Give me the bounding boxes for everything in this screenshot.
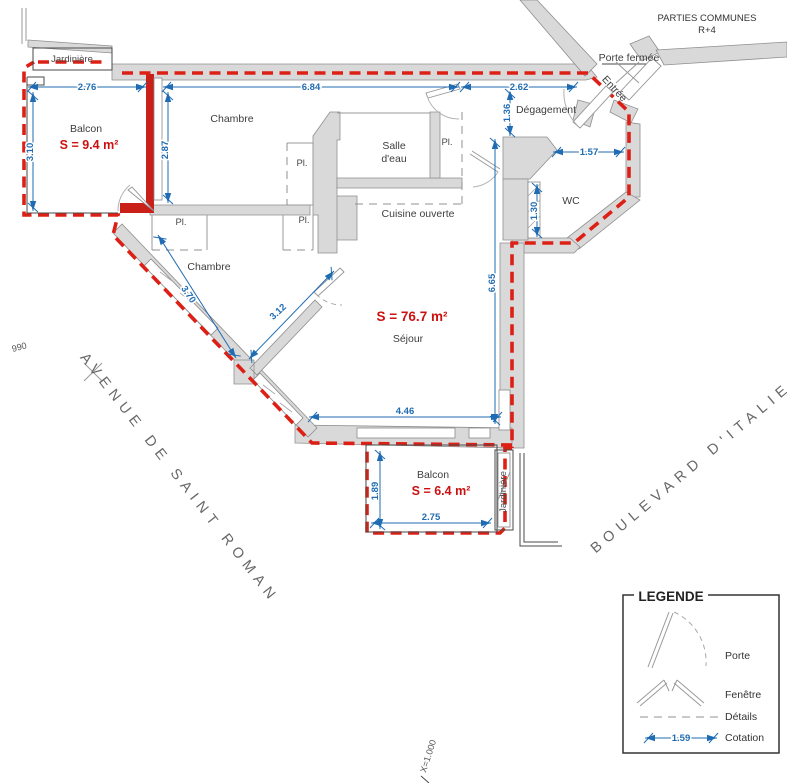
chambre-top-label: Chambre (210, 113, 253, 125)
door-arc-chambre-mid (316, 294, 342, 305)
dim-label-1-57: 1.57 (580, 147, 599, 158)
floor-plan-svg: 2.76 6.84 2.62 3.10 2.87 1.36 1.57 1.30 … (0, 0, 787, 783)
coord-x1000: X=1.000 (418, 738, 438, 773)
floor-plan: 2.76 6.84 2.62 3.10 2.87 1.36 1.57 1.30 … (0, 0, 787, 783)
placard-label-3: Pl. (175, 217, 186, 228)
dim-label-1-36: 1.36 (502, 104, 513, 123)
wall-wc-pillar (503, 137, 557, 179)
salle-eau-line2: d'eau (381, 153, 407, 165)
door-leaf-chambre-mid (314, 268, 344, 296)
sejour-area: S = 76.7 m² (377, 309, 448, 324)
topleft-lines (22, 8, 26, 44)
legend-label-porte: Porte (725, 650, 750, 662)
street-boulevard: BOULEVARD D'ITALIE (588, 379, 787, 556)
window-east-wall (499, 390, 510, 430)
wall-topleft-band (28, 40, 112, 53)
placard-chambre1-box (287, 143, 313, 205)
dim-label-3-12: 3.12 (268, 302, 289, 323)
red-wall-corner (120, 203, 154, 213)
placard-label-1: Pl. (296, 158, 307, 169)
dim-label-4-46: 4.46 (396, 406, 415, 417)
legend-box (623, 595, 779, 753)
legend-label-fenetre: Fenêtre (725, 689, 761, 701)
wc-label: WC (562, 195, 580, 207)
dim-label-2-75: 2.75 (422, 512, 441, 523)
window-sejour-south-1 (357, 428, 455, 438)
legend-sample-dimension: 1.59 (672, 733, 691, 744)
door-arc-wc (473, 172, 498, 187)
placard-label-4: Pl. (298, 215, 309, 226)
balcon-nw-area: S = 9.4 m² (60, 138, 119, 152)
balcon-s-area: S = 6.4 m² (412, 484, 471, 498)
cuisine-label: Cuisine ouverte (382, 208, 455, 220)
porte-fermee-cross (616, 62, 639, 83)
wall-entree-east-jamb (610, 100, 638, 123)
legend-title: LEGENDE (638, 589, 703, 604)
jardiniere-right-label: Jardinière (498, 471, 509, 513)
window-chambre-balcon (154, 78, 162, 200)
balcon-nw-label: Balcon (70, 123, 102, 135)
red-wall-balcon-east (146, 74, 154, 204)
dim-label-2-87: 2.87 (160, 141, 171, 160)
parties-communes-line1: PARTIES COMMUNES (658, 13, 757, 24)
parties-communes-line2: R+4 (698, 25, 716, 36)
cuisine-zone-dash (355, 112, 462, 204)
dim-chambre-mid-b (249, 271, 334, 359)
wall-chambre1-south (150, 205, 310, 215)
wall-salle-south (337, 178, 462, 188)
legend: LEGENDE 1.59 Porte Fenêtre Détails Cotat… (623, 588, 779, 753)
wall-wc-west (503, 179, 528, 240)
dim-label-6-84: 6.84 (302, 82, 321, 93)
wall-salle-east (430, 112, 440, 178)
coord-tick (421, 776, 429, 783)
jardiniere-top-label: Jardinière (51, 54, 93, 65)
dim-label-1-89: 1.89 (370, 482, 381, 501)
coord-990: 990 (11, 340, 28, 354)
windows (144, 78, 540, 438)
degagement-label: Dégagement (516, 104, 576, 116)
legend-label-cotation: Cotation (725, 732, 764, 744)
salle-eau-line1: Salle (382, 140, 406, 152)
dim-label-2-62: 2.62 (510, 82, 529, 93)
dim-label-2-76: 2.76 (78, 82, 97, 93)
placard-label-2: Pl. (441, 137, 452, 148)
sejour-label: Séjour (393, 333, 424, 345)
legend-label-details: Détails (725, 711, 757, 723)
window-sw-2 (253, 373, 303, 425)
porte-fermee-label: Porte fermée (599, 52, 660, 64)
door-leaf-degagement (426, 84, 460, 98)
window-sejour-south-2 (469, 428, 490, 438)
dim-label-6-65: 6.65 (487, 273, 498, 292)
street-avenue: AVENUE DE SAINT ROMAN (76, 350, 281, 607)
building-edge-lines (520, 453, 562, 546)
dim-label-1-30: 1.30 (529, 202, 540, 221)
dim-label-3-10: 3.10 (25, 143, 36, 162)
chambre-mid-label: Chambre (187, 261, 230, 273)
wall-right-band (656, 42, 787, 65)
balcon-s-label: Balcon (417, 469, 449, 481)
walls (28, 0, 787, 448)
